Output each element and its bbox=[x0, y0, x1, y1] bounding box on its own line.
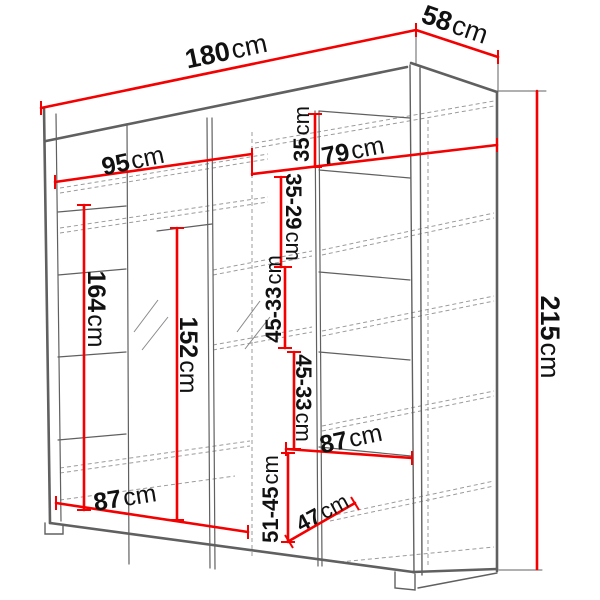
dim-label-top-shelf-height: 35cm bbox=[289, 106, 314, 162]
dimension-labels: 180cm 58cm 215cm 95cm 79cm 35cm 35-29cm … bbox=[82, 0, 565, 543]
dim-label-top-right-width: 79cm bbox=[319, 131, 386, 171]
dim-label-top-left-width: 95cm bbox=[99, 141, 167, 182]
dim-label-shelf-gap-upper: 35-29cm bbox=[281, 173, 306, 261]
wardrobe-drawing: 180cm 58cm 215cm 95cm 79cm 35cm 35-29cm … bbox=[0, 0, 600, 600]
dim-label-shelf-gap-mid-upper: 45-33cm bbox=[261, 255, 286, 343]
dim-label-overall-width: 180cm bbox=[182, 28, 269, 75]
dim-label-shelf-gap-mid-lower: 45-33cm bbox=[291, 354, 316, 442]
dim-line-180 bbox=[41, 30, 416, 108]
dim-label-bottom-left-width: 87cm bbox=[92, 479, 159, 517]
dim-label-left-hanging-height: 164cm bbox=[82, 270, 110, 347]
dim-label-center-hanging-height: 152cm bbox=[174, 316, 202, 393]
dim-label-shelf-gap-lower: 51-45cm bbox=[258, 455, 283, 543]
wardrobe-diagram: 180cm 58cm 215cm 95cm 79cm 35cm 35-29cm … bbox=[0, 0, 600, 600]
dim-label-overall-height: 215cm bbox=[535, 295, 565, 378]
